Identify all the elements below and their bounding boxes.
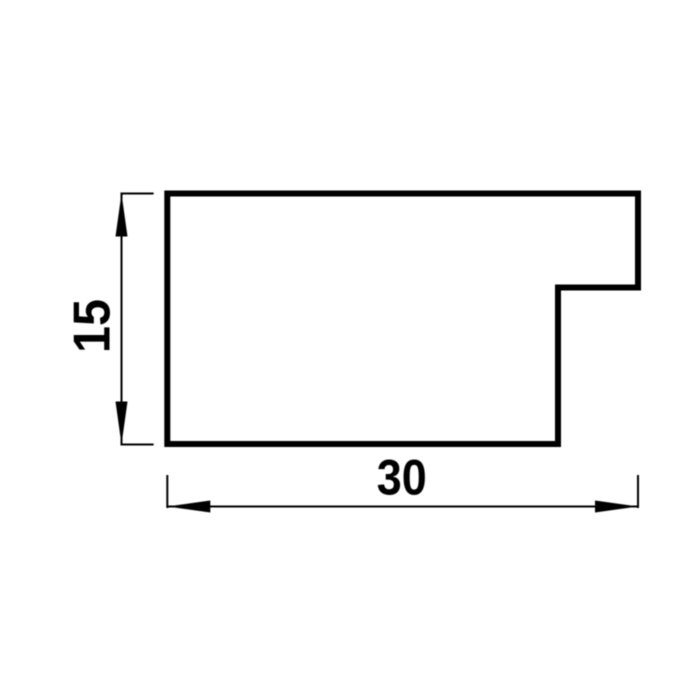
svg-text:15: 15 [64, 299, 122, 353]
svg-text:30: 30 [377, 450, 427, 506]
